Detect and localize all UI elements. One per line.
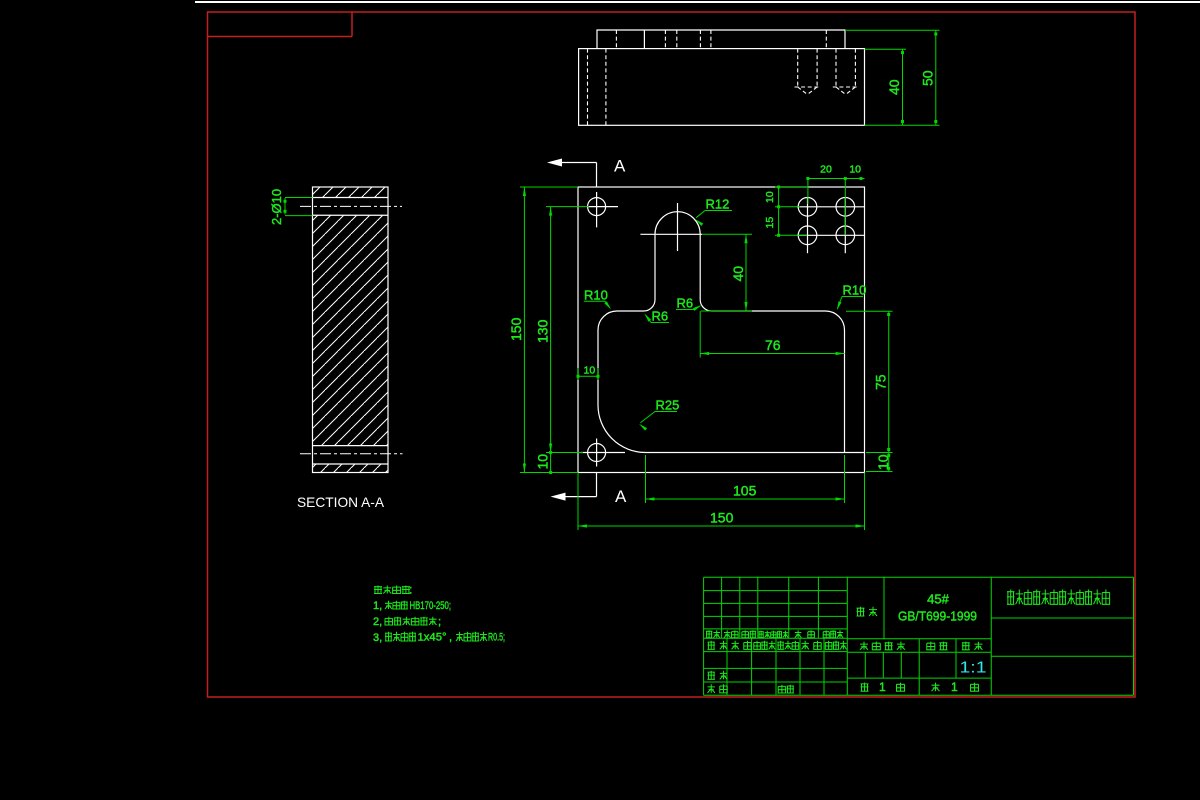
svg-text:20: 20 [820,164,832,176]
svg-text:10: 10 [535,454,551,470]
svg-text:R10: R10 [584,288,608,303]
svg-text:1: 1 [951,680,958,694]
svg-text:45#: 45# [927,592,949,607]
svg-text:1x45°: 1x45° [418,632,447,644]
svg-text:HB170-250;: HB170-250; [410,600,452,612]
svg-text:10: 10 [875,454,891,470]
svg-text:GB/T699-1999: GB/T699-1999 [898,609,977,624]
svg-text:75: 75 [873,374,889,390]
svg-text:1:1: 1:1 [960,660,987,677]
svg-text:SECTION A-A: SECTION A-A [297,494,385,510]
svg-text:3,: 3, [373,632,382,644]
svg-text:150: 150 [508,317,524,341]
svg-text:130: 130 [535,319,551,343]
svg-text:;: ; [438,616,441,628]
svg-text:76: 76 [765,337,781,353]
svg-text:R12: R12 [706,197,730,212]
svg-text:150: 150 [710,510,734,526]
svg-text:R0.5;: R0.5; [488,632,505,644]
svg-text:2,: 2, [373,616,382,628]
svg-text:R10: R10 [843,283,867,298]
svg-text:1,: 1, [373,600,382,612]
svg-text:R6: R6 [677,296,694,311]
svg-text:,: , [449,632,452,644]
svg-text:40: 40 [730,266,746,282]
svg-text:1: 1 [879,680,886,694]
svg-text:R6: R6 [652,309,669,324]
svg-text:40: 40 [886,79,902,95]
svg-text:10: 10 [584,365,596,377]
svg-text:10: 10 [764,191,776,203]
svg-text:A: A [615,487,627,506]
svg-text:105: 105 [733,483,757,499]
svg-text::: : [409,583,412,597]
svg-text:50: 50 [920,70,936,86]
svg-text:2-Ø10: 2-Ø10 [269,189,284,225]
svg-text:15: 15 [764,217,776,229]
svg-text:A: A [614,157,626,176]
svg-text:10: 10 [849,164,861,176]
svg-text:R25: R25 [656,398,680,413]
